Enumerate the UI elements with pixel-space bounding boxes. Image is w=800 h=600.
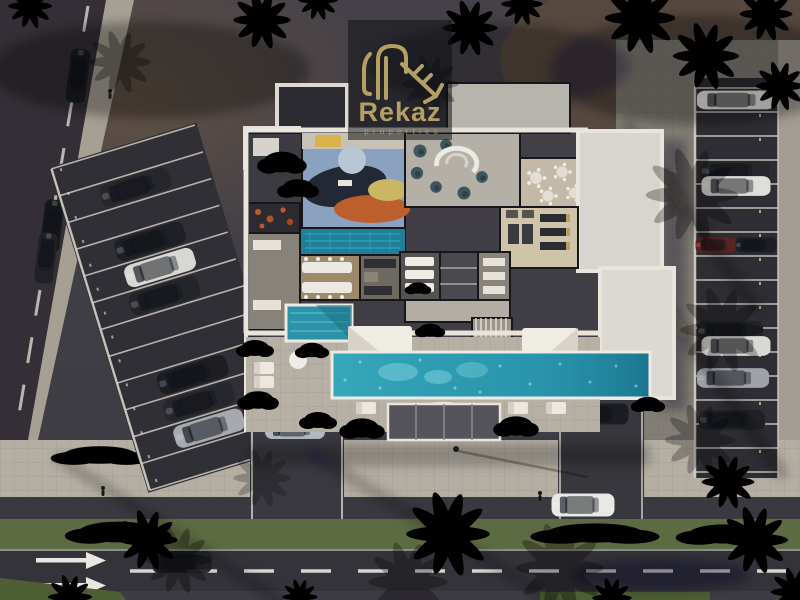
roof-right-wing bbox=[578, 131, 662, 271]
pedestrian bbox=[538, 491, 542, 501]
orange-dot-room bbox=[248, 203, 300, 233]
bench bbox=[253, 240, 281, 250]
pergola-canopy bbox=[348, 326, 412, 352]
banquet-dining bbox=[295, 255, 360, 300]
brand-tagline: properties bbox=[364, 127, 442, 136]
bathrooms bbox=[440, 252, 510, 300]
main-pool bbox=[332, 352, 650, 398]
kitchen bbox=[360, 255, 400, 300]
roof-slab-topright bbox=[447, 83, 570, 133]
rekaz-logo: Rekaz properties bbox=[348, 20, 452, 140]
brand-name: Rekaz bbox=[358, 97, 441, 127]
parked-car bbox=[736, 238, 777, 253]
aerial-render: Rekaz properties bbox=[0, 0, 800, 600]
entrance-canopy bbox=[277, 85, 347, 130]
car-on-access-road bbox=[552, 493, 615, 516]
glass-canopy bbox=[388, 404, 500, 440]
small-pool bbox=[286, 305, 352, 341]
lounge-poufs-room bbox=[405, 133, 520, 207]
gym bbox=[500, 207, 578, 268]
pedestrian bbox=[101, 486, 105, 496]
bench bbox=[253, 300, 281, 310]
art-rug-room bbox=[300, 133, 410, 228]
building bbox=[236, 83, 674, 440]
pergola-canopy bbox=[522, 328, 578, 352]
render-canvas: Rekaz properties bbox=[0, 0, 800, 600]
